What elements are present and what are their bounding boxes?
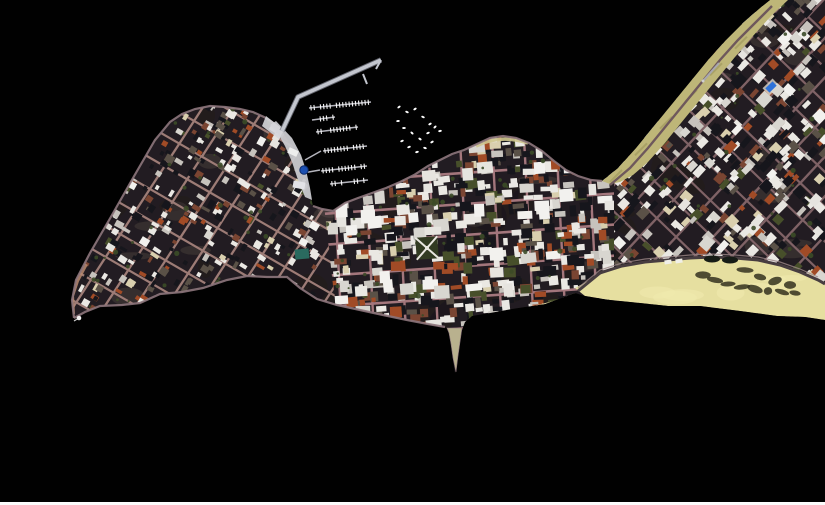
harbor-blue-dome	[300, 166, 308, 174]
satellite-photo	[0, 0, 825, 505]
plaza-square	[415, 236, 438, 259]
dune-dark-structure	[722, 257, 738, 264]
teal-roof-building	[295, 248, 310, 259]
lighthouse-point	[77, 316, 82, 321]
screenshot-root	[0, 0, 825, 505]
dune-dark-structure	[704, 256, 720, 263]
